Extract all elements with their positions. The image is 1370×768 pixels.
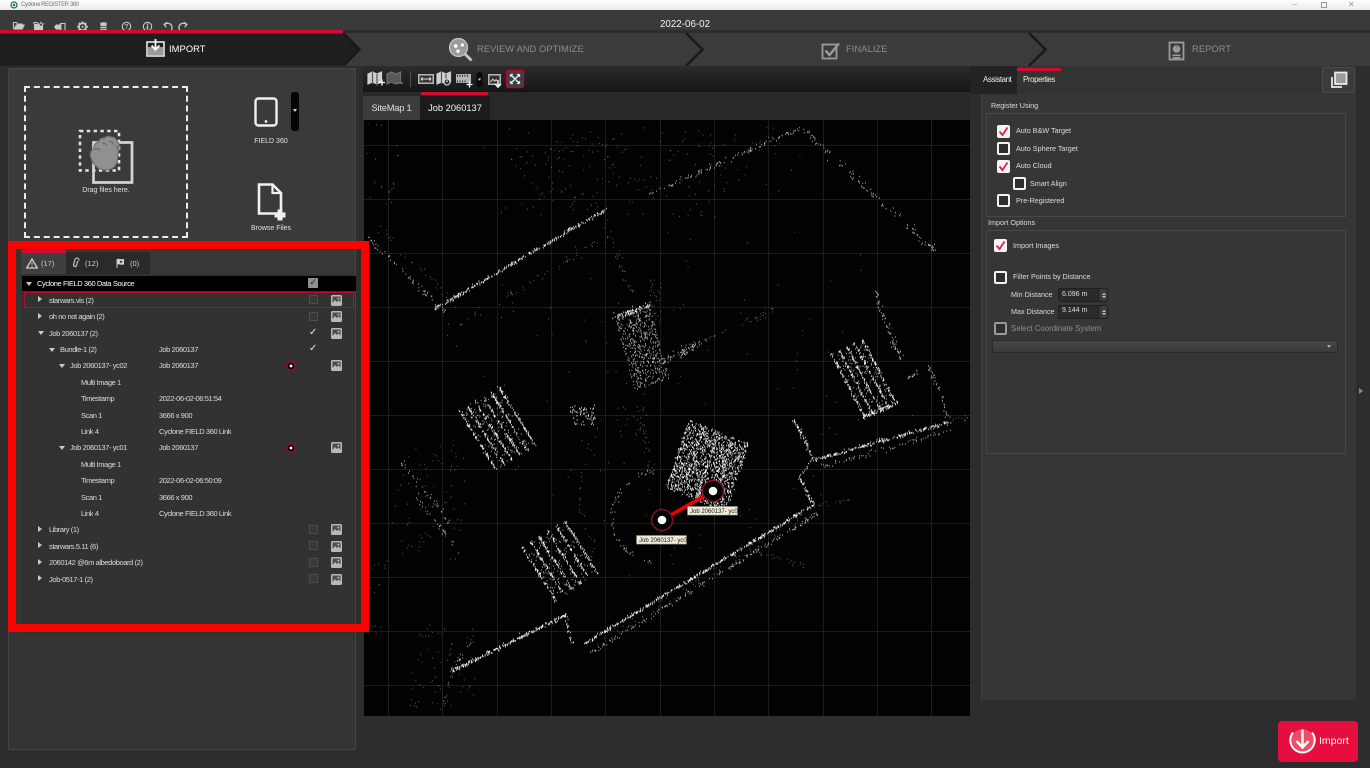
svg-text:Job 2060137- yc01: Job 2060137- yc01 [639, 538, 691, 544]
svg-text:Job 2060137- yc02: Job 2060137- yc02 [690, 509, 742, 515]
